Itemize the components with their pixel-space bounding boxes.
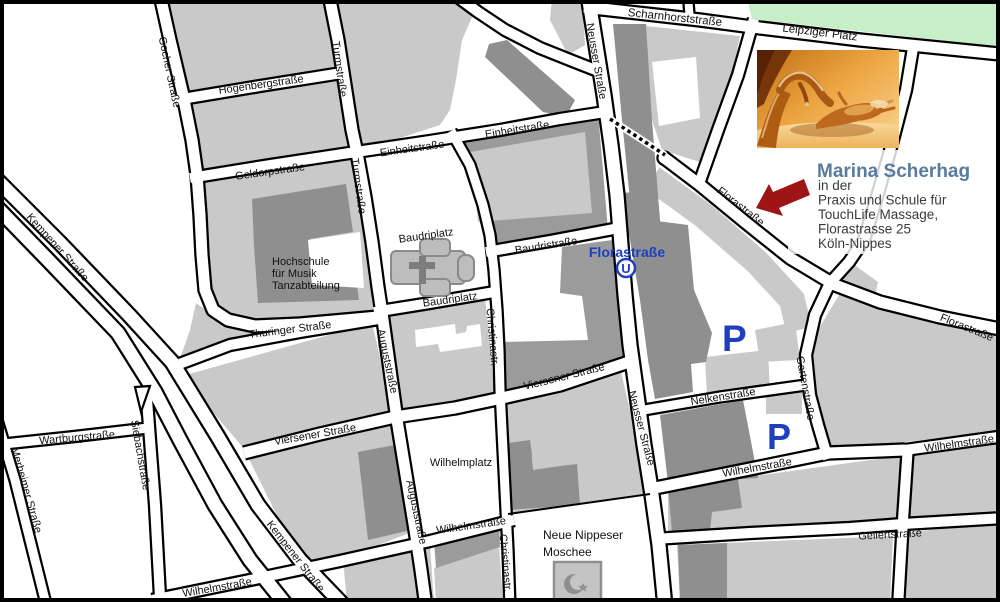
svg-text:Praxis und Schule für: Praxis und Schule für: [818, 193, 947, 208]
svg-text:P: P: [767, 416, 791, 457]
svg-text:Moschee: Moschee: [543, 545, 592, 559]
svg-text:TouchLife Massage,: TouchLife Massage,: [818, 207, 938, 222]
svg-text:Köln-Nippes: Köln-Nippes: [818, 236, 892, 251]
svg-text:für Musik: für Musik: [272, 268, 317, 280]
svg-text:Hochschule: Hochschule: [272, 256, 329, 268]
svg-text:P: P: [722, 318, 747, 359]
svg-text:Wilhelmplatz: Wilhelmplatz: [430, 457, 492, 469]
svg-text:Neue Nippeser: Neue Nippeser: [543, 528, 623, 542]
svg-text:Tanzabteilung: Tanzabteilung: [272, 280, 340, 292]
svg-text:Florastrasse 25: Florastrasse 25: [818, 222, 911, 237]
svg-text:U: U: [621, 261, 630, 276]
svg-text:Florastraße: Florastraße: [589, 244, 665, 260]
svg-text:in der: in der: [818, 178, 852, 193]
